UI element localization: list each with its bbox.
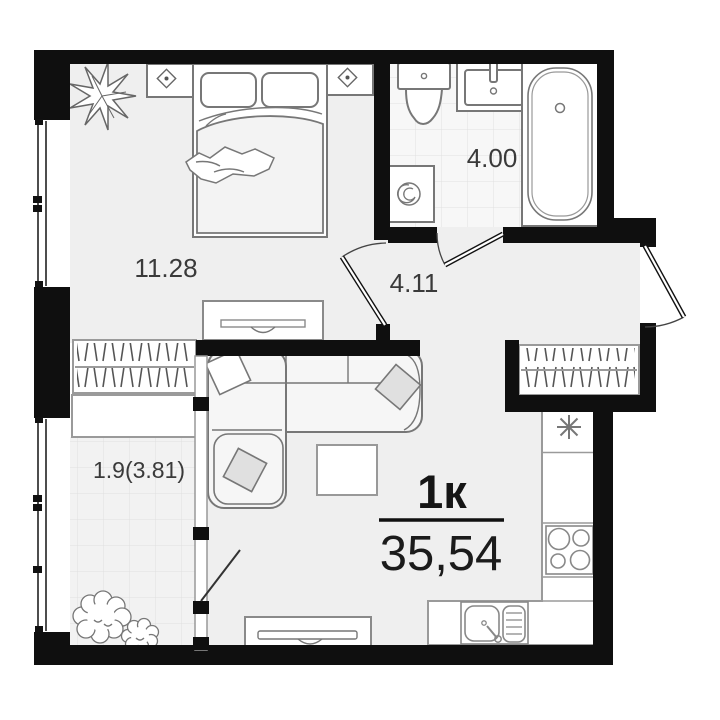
total-area-label: 35,54 (380, 527, 503, 581)
wall-niche-bottom (505, 395, 656, 412)
hall-area-label: 4.11 (390, 268, 439, 298)
floorplan-page: 11.28 4.00 4.11 1.9(3.81) 1к 35,54 (0, 0, 720, 720)
apartment-type-label: 1к (417, 465, 467, 518)
wall-entry-top (597, 218, 656, 243)
pillow-icon (201, 73, 256, 107)
wardrobe-icon (519, 345, 639, 395)
wall-top (34, 50, 614, 64)
bathtub-icon (522, 62, 598, 226)
wall-niche-left (505, 340, 519, 400)
nightstand-lamp-icon (327, 64, 373, 95)
wall-sink-icon (457, 60, 531, 111)
wall-bath-bottom-left (388, 227, 437, 243)
wall-bedroom-bathroom (374, 50, 390, 240)
dresser-icon (203, 301, 323, 340)
nightstand-lamp-icon (147, 64, 193, 97)
window-icon (33, 417, 70, 632)
balcony-area-label: 1.9(3.81) (93, 457, 185, 483)
kitchen-sink-icon (461, 602, 528, 644)
balcony-cabinet (72, 395, 196, 437)
bedroom-area-label: 11.28 (134, 253, 197, 283)
vent-star-icon (557, 415, 581, 439)
bed-icon (186, 64, 327, 237)
wardrobe-icon (73, 340, 196, 393)
wall-right-bathroom (597, 50, 614, 243)
wall-bath-bottom-right (503, 227, 598, 243)
entrance-door-icon (640, 243, 684, 327)
stove-icon (546, 526, 593, 574)
coffee-table-icon (317, 445, 377, 495)
pillow-icon (262, 73, 318, 107)
washing-machine-icon (388, 166, 434, 222)
floorplan-svg: 11.28 4.00 4.11 1.9(3.81) 1к 35,54 (0, 0, 720, 720)
bathroom-area-label: 4.00 (467, 143, 518, 173)
wall-right-lower (593, 412, 613, 665)
window-icon (33, 119, 70, 287)
wall-door-stub (376, 324, 390, 344)
wall-bottom (34, 645, 613, 665)
